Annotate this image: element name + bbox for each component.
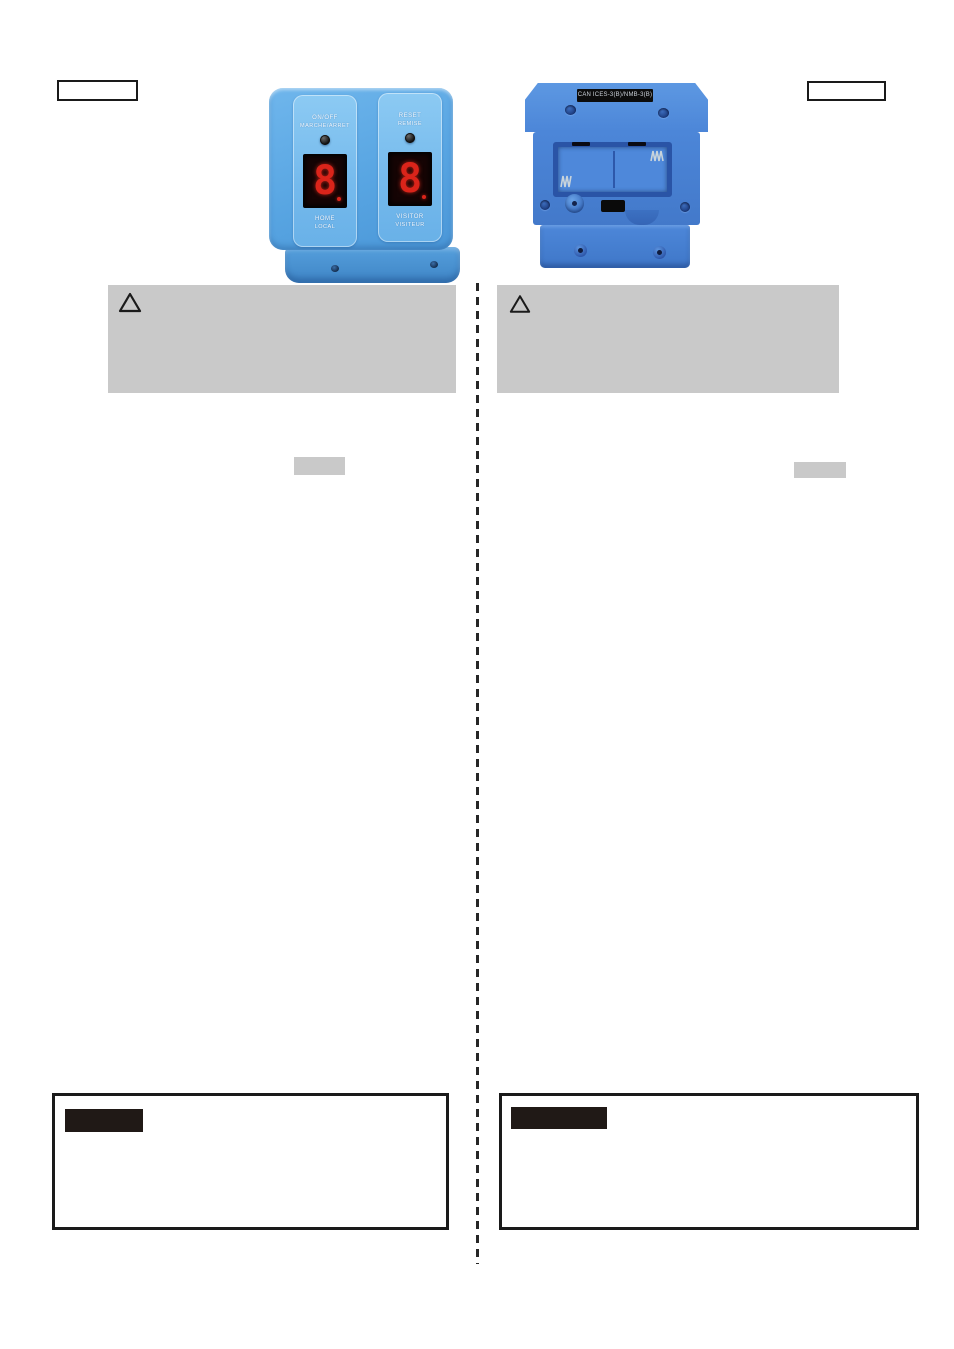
note-tag-right xyxy=(511,1107,607,1129)
home-panel: ON/OFF MARCHE/ARRET 8 HOME LOCAL xyxy=(293,95,357,247)
placeholder-chip-left xyxy=(294,457,345,475)
top-left-empty-box xyxy=(57,80,138,101)
placeholder-chip-right xyxy=(794,462,846,478)
back-top-flange: CAN ICES-3(B)/NMB-3(B) xyxy=(525,83,708,132)
on-off-label: ON/OFF xyxy=(312,114,338,122)
controller-front-photo: ON/OFF MARCHE/ARRET 8 HOME LOCAL RESET R… xyxy=(268,84,454,284)
switch-slot xyxy=(601,200,625,212)
reset-label: RESET xyxy=(399,112,422,120)
base-hole-right xyxy=(430,261,438,268)
mounting-hole-top-right xyxy=(658,108,669,118)
battery-spring-right xyxy=(649,149,665,163)
reset-button xyxy=(405,133,415,143)
warning-triangle-icon xyxy=(509,294,531,314)
screw-hole-mid-right xyxy=(680,202,690,212)
screw-hole-mid-left xyxy=(540,200,550,210)
controller-back-photo: CAN ICES-3(B)/NMB-3(B) xyxy=(521,74,709,274)
compartment-vent-left xyxy=(572,142,590,146)
visitor-panel: RESET REMISE 8 VISITOR VISITEUR xyxy=(378,93,442,242)
compartment-vent-right xyxy=(628,142,646,146)
mounting-hole-top-left xyxy=(565,105,576,115)
decimal-point xyxy=(337,197,341,201)
back-bottom-flange xyxy=(540,225,690,268)
on-off-button xyxy=(320,135,330,145)
warning-triangle-icon xyxy=(118,292,142,313)
local-label: LOCAL xyxy=(315,223,336,231)
visitor-score-digit: 8 xyxy=(398,159,422,199)
controller-base xyxy=(285,247,460,283)
note-box-right xyxy=(499,1093,919,1230)
visitor-label: VISITOR xyxy=(396,213,423,221)
screw-hole-bottom-left xyxy=(574,244,587,257)
top-right-empty-box xyxy=(807,81,886,101)
compliance-label: CAN ICES-3(B)/NMB-3(B) xyxy=(577,89,653,102)
controller-body: ON/OFF MARCHE/ARRET 8 HOME LOCAL RESET R… xyxy=(269,88,453,250)
compartment-divider xyxy=(613,151,615,188)
home-score-display: 8 xyxy=(303,154,347,208)
back-mid-section xyxy=(533,132,700,225)
base-hole-left xyxy=(331,265,339,272)
warning-box-right xyxy=(497,285,839,393)
visiteur-label: VISITEUR xyxy=(395,221,424,229)
warning-box-left xyxy=(108,285,456,393)
home-label: HOME xyxy=(315,215,335,223)
home-score-digit: 8 xyxy=(313,161,337,201)
manual-page: ON/OFF MARCHE/ARRET 8 HOME LOCAL RESET R… xyxy=(0,0,954,1349)
marche-arret-label: MARCHE/ARRET xyxy=(300,122,350,130)
screw-boss xyxy=(565,194,584,213)
note-box-left xyxy=(52,1093,449,1230)
battery-spring-left xyxy=(559,173,573,189)
visitor-score-display: 8 xyxy=(388,152,432,206)
decimal-point xyxy=(422,195,426,199)
screw-hole-bottom-right xyxy=(653,246,666,259)
note-tag-left xyxy=(65,1109,143,1132)
remise-label: REMISE xyxy=(398,120,422,128)
battery-compartment xyxy=(553,142,672,197)
column-divider xyxy=(476,283,479,1264)
thumb-notch xyxy=(625,210,659,225)
